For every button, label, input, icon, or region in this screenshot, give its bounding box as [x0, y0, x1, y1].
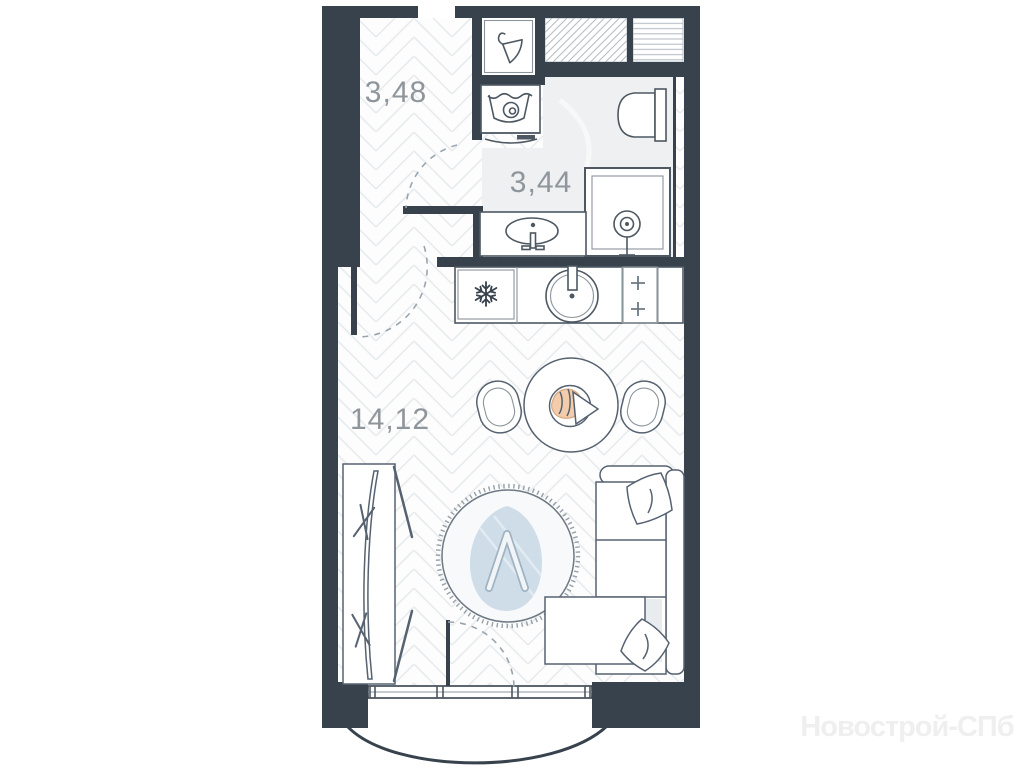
living-door-leaf [351, 267, 357, 335]
floorplan-svg: 3,48 3,44 14,12 Новострой-СПб [0, 0, 1022, 768]
floor-plan-page: 3,48 3,44 14,12 Новострой-СПб [0, 0, 1022, 768]
balcony-door-leaf [446, 620, 450, 686]
entry-wardrobe [482, 18, 535, 75]
shower-icon [585, 168, 670, 256]
ventilation-shafts [545, 18, 683, 62]
bathroom-area-label: 3,44 [510, 166, 572, 199]
kitchen-counter [455, 266, 683, 323]
watermark: Новострой-СПб [800, 711, 1013, 743]
living-area-label: 14,12 [350, 403, 430, 436]
shaft-diagonal-hatch [545, 18, 627, 62]
bathroom-sink-icon [480, 212, 586, 256]
hallway-area-label: 3,48 [365, 76, 427, 109]
bathroom-pipe-line [673, 70, 676, 258]
shaft-horizontal-hatch [633, 18, 683, 62]
toilet-icon [618, 89, 666, 141]
balcony-outline [348, 726, 607, 763]
